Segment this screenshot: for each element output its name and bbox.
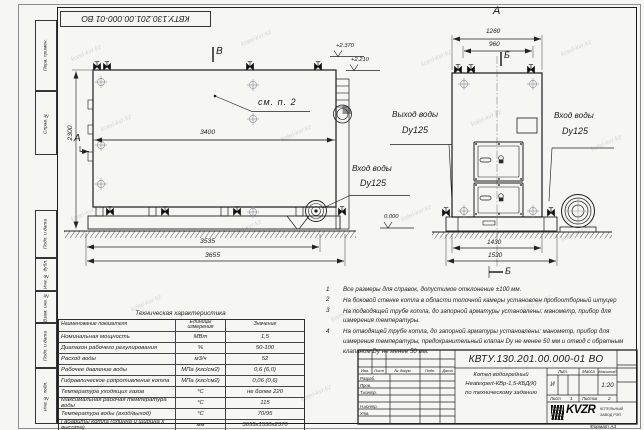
note-item: 1 Все размеры для справок, допустимое от… <box>326 285 632 295</box>
inlet-dn-label-front: Dy125 <box>562 127 588 136</box>
spec-cell-name: Диапазон рабочего регулирования <box>59 343 176 354</box>
spec-cell-units: МПа (кгс/см2) <box>176 365 226 376</box>
doc-title-line1: Котел водогрейный <box>457 371 545 380</box>
margin-label: Подп. и дата <box>36 324 56 367</box>
spec-cell-value: 52 <box>226 354 304 365</box>
doc-title: Котел водогрейный Heatexpert-КВр-1,5-КБД… <box>457 371 545 398</box>
spec-cell-value: 70/95 <box>226 409 304 420</box>
sig-header-list: Лист <box>372 367 386 374</box>
spec-cell-name: Номинальная мощность <box>59 332 176 343</box>
logo-caption-line2: ЗАВОД РЭП <box>600 413 623 419</box>
inlet-dn-label-side: Dy125 <box>360 179 386 188</box>
spec-header-units: Единицы измерения <box>176 320 226 332</box>
margin-box-podp-data-2: Подп. и дата <box>35 323 57 368</box>
note-text: На подводящей трубе котла, до запорной а… <box>343 307 632 327</box>
lit-value: И <box>547 375 558 395</box>
note-text: Все размеры для справок, допустимое откл… <box>343 285 632 295</box>
top-flipped-stamp-text: КВТУ.130.201.00.000-01 ВО <box>61 12 210 26</box>
scale-value: 1:20 <box>598 375 617 395</box>
doc-title-line2: Heatexpert-КВр-1,5-КБД(К) <box>457 380 545 389</box>
lit-label: Лит. <box>547 368 579 375</box>
kvzr-logo-text: KVZR <box>566 404 595 416</box>
spec-header-value: Значение <box>226 320 304 332</box>
dim-label-3655: 3655 <box>205 253 220 260</box>
see-note-label: см. п. 2 <box>258 98 297 107</box>
elevation-label-0000: 0.000 <box>384 215 399 221</box>
kvzr-logo-caption: КОТЕЛЬНЫЙ ЗАВОД РЭП <box>600 407 623 419</box>
margin-box-perv-primen: Перв. примен. <box>35 20 57 91</box>
margin-label: Инв. № подл. <box>36 369 56 423</box>
outlet-dn-label: Dy125 <box>402 126 428 135</box>
dim-label-1260: 1260 <box>486 29 500 35</box>
inlet-water-label-front: Вход воды <box>554 112 594 120</box>
margin-box-podp-data-1: Подп. и дата <box>35 210 57 258</box>
section-mark-b-top: Б <box>504 51 510 60</box>
spec-cell-name: Температура уходящих газов <box>59 387 176 398</box>
sheets-label: Листов <box>582 396 597 401</box>
margin-label: Справ. № <box>36 92 56 154</box>
elevation-label-2210: +2.210 <box>351 58 369 64</box>
drawing-sheet: kotel-kvr.kz kotel-kvr.kz kotel-kvr.kz k… <box>0 0 644 430</box>
outlet-water-label: Выход воды <box>392 111 438 119</box>
notes-list: 1 Все размеры для справок, допустимое от… <box>326 285 632 358</box>
sig-row-prov: Пров. <box>360 383 371 388</box>
sig-row-utv: Утв. <box>360 411 370 416</box>
dim-label-3400: 3400 <box>200 130 215 137</box>
spec-cell-units: °С <box>176 398 226 409</box>
note-text: На боковой стенке котла в области топочн… <box>343 296 632 306</box>
dim-label-960: 960 <box>489 42 500 48</box>
margin-label: Подп. и дата <box>36 211 56 257</box>
view-mark-a-front: А <box>493 6 500 17</box>
spec-cell-name: Расход воды <box>59 354 176 365</box>
spec-cell-units: °С <box>176 387 226 398</box>
sig-header-izm: Изм. <box>358 367 372 374</box>
sig-row-razrab: Разраб. <box>360 376 375 381</box>
note-number: 3 <box>326 307 343 327</box>
margin-label: Перв. примен. <box>36 21 56 90</box>
sig-header-dokum: № докум. <box>386 367 420 374</box>
note-number: 4 <box>326 327 343 356</box>
spec-cell-units: МПа (кгс/см2) <box>176 376 226 387</box>
top-flipped-stamp: КВТУ.130.201.00.000-01 ВО <box>60 11 211 27</box>
scale-label: Масштаб <box>598 368 617 375</box>
spec-cell-units: МВт <box>176 332 226 343</box>
dim-label-1530: 1530 <box>488 253 502 259</box>
kvzr-logo-mark <box>551 405 564 420</box>
margin-box-vzam-inv: Взам. инв. № <box>35 291 57 323</box>
note-item: 2 На боковой стенке котла в области топо… <box>326 296 632 306</box>
margin-box-sprav-no: Справ. № <box>35 91 57 155</box>
view-mark-v: В <box>216 47 223 57</box>
spec-cell-name: Гидравлическое сопротивление котла <box>59 376 176 387</box>
format-label: Формат А3 <box>571 424 635 430</box>
sheet-label: Лист <box>550 396 561 401</box>
spec-cell-value: 1,5 <box>226 332 304 343</box>
inlet-water-label-side: Вход воды <box>352 165 392 173</box>
spec-cell-value: 115 <box>226 398 304 409</box>
note-number: 2 <box>326 296 343 306</box>
sig-header-data: Дата <box>440 367 455 374</box>
spec-cell-name: Рабочее давление воды <box>59 365 176 376</box>
spec-cell-units: °С <box>176 409 226 420</box>
spec-cell-name: Температура воды (вход/выход) <box>59 409 176 420</box>
tech-spec-table: Техническая характеристика Наименование … <box>58 310 305 430</box>
margin-label: Инв. № дубл. <box>36 259 56 290</box>
sheets-value: 2 <box>608 396 611 401</box>
spec-cell-value: не более 220 <box>226 387 304 398</box>
spec-cell-units: мм <box>176 420 226 430</box>
spec-cell-value: 50-100 <box>226 343 304 354</box>
spec-header-name: Наименование показателя <box>59 320 176 332</box>
dim-label-2300: 2300 <box>66 118 76 148</box>
sig-header-podp: Подп. <box>420 367 440 374</box>
spec-cell-value: 0,06 (0,6) <box>226 376 304 387</box>
spec-table-title: Техническая характеристика <box>58 310 303 317</box>
margin-label: Взам. инв. № <box>36 292 56 322</box>
sig-row-tkontr: Т.контр. <box>360 390 377 395</box>
spec-cell-name: Максимальная рабочая температура воды <box>59 398 176 409</box>
section-mark-b-bottom: Б <box>505 267 511 276</box>
dim-label-1430: 1430 <box>487 240 501 246</box>
spec-cell-units: м3/ч <box>176 354 226 365</box>
margin-box-inv-podl: Инв. № подл. <box>35 368 57 424</box>
note-number: 1 <box>326 285 343 295</box>
dim-label-3535: 3535 <box>200 239 215 246</box>
sig-row-nkontr: Н.контр. <box>360 404 378 409</box>
sheet-value: 1 <box>570 396 573 401</box>
mass-label: Масса <box>579 368 598 375</box>
note-item: 3 На подводящей трубе котла, до запорной… <box>326 307 632 327</box>
margin-box-inv-dubl: Инв. № дубл. <box>35 258 57 291</box>
spec-cell-units: % <box>176 343 226 354</box>
spec-cell-value: 0,6 (6,0) <box>226 365 304 376</box>
doc-number: КВТУ.130.201.00.000-01 ВО <box>456 350 616 368</box>
spec-cell-name: Габариты котла (длинна и ширина х высота… <box>59 420 176 430</box>
spec-cell-value: 3655х1530х2370 <box>226 420 304 430</box>
doc-title-line3: по техническому заданию <box>457 389 545 398</box>
elevation-label-2370: +2.370 <box>336 44 354 50</box>
